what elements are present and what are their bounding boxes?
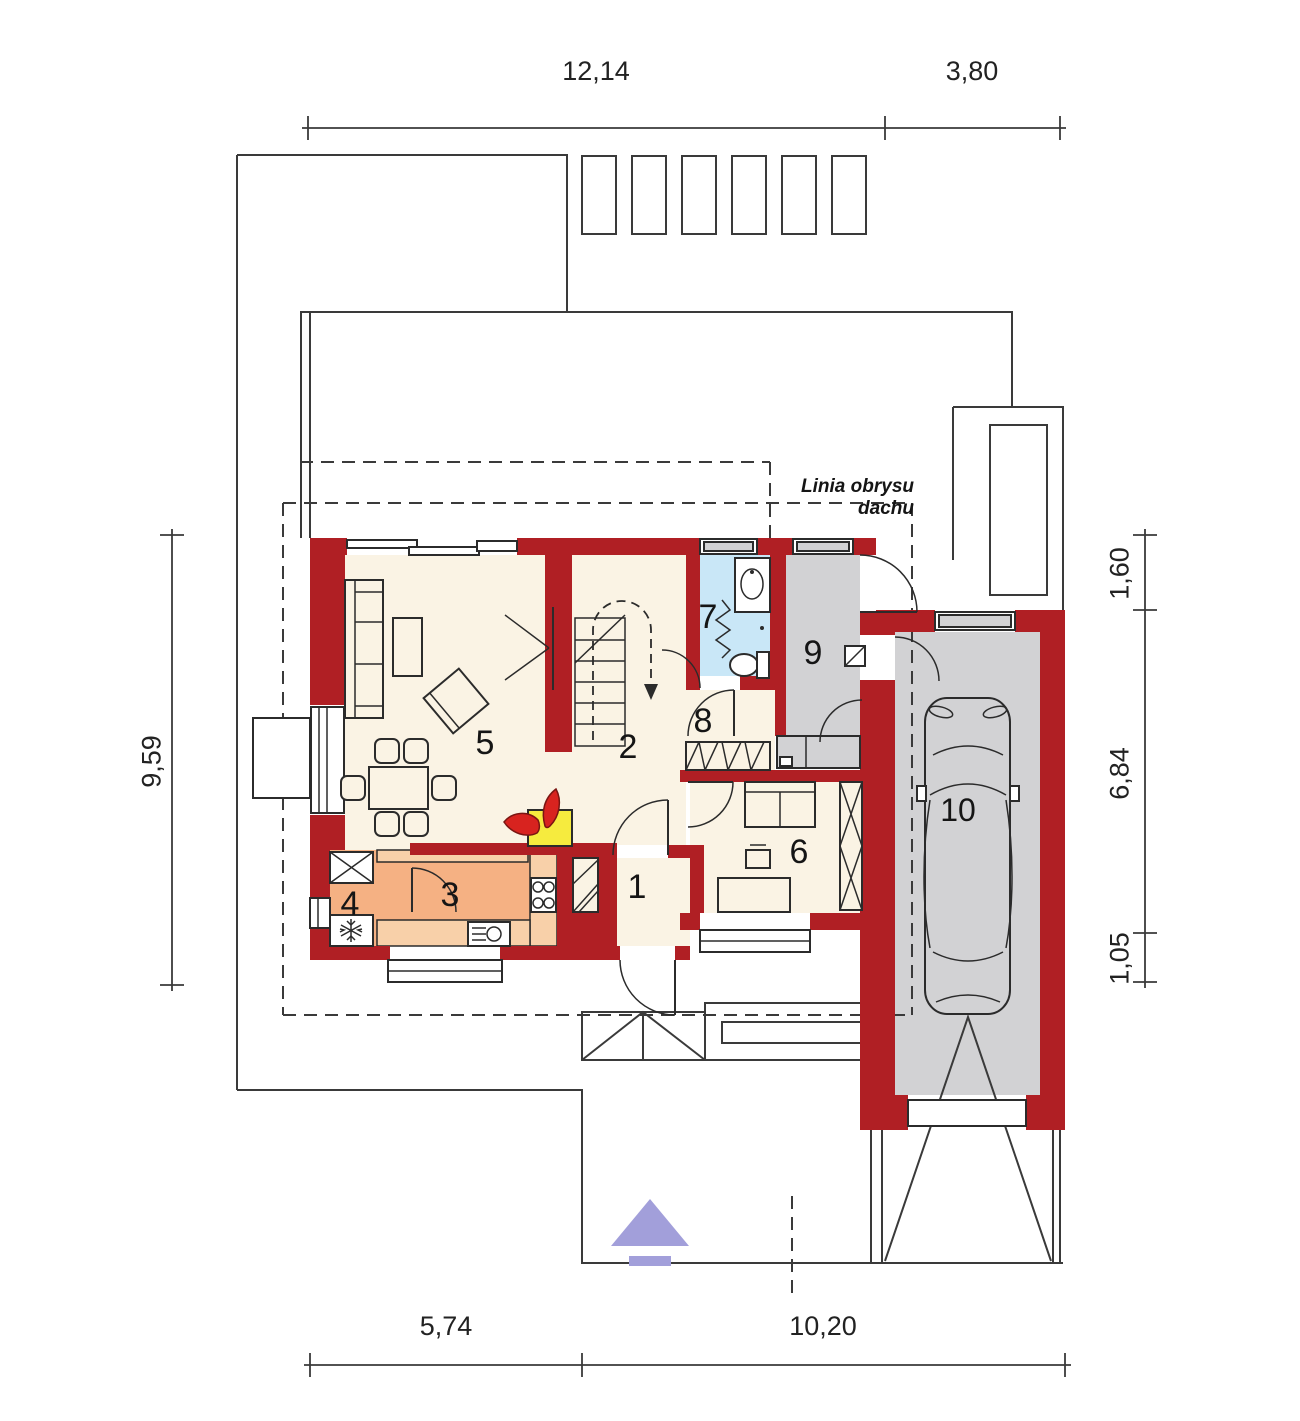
- desk: [718, 878, 790, 912]
- stove: [531, 878, 556, 912]
- sliding-door-panel: [347, 540, 417, 548]
- canopy-post: [990, 425, 1047, 595]
- room-label-3: 3: [428, 876, 472, 915]
- toilet: [730, 652, 769, 678]
- dim-top-right: 3,80: [912, 56, 1032, 87]
- front-door: [620, 960, 675, 1015]
- car-mirror: [917, 786, 926, 801]
- vestibule-cabinet: [777, 736, 860, 768]
- desk-monitor: [746, 850, 770, 868]
- roof-outline-label: Linia obrysu dachu: [754, 476, 914, 520]
- sliding-door-panel: [409, 547, 479, 555]
- room-label-1: 1: [615, 868, 659, 907]
- window-sill-south: [705, 1003, 883, 1060]
- dining-table: [369, 767, 428, 809]
- closet-wardrobe: [686, 742, 770, 770]
- dim-right-middle: 6,84: [1105, 734, 1136, 814]
- car: [917, 698, 1019, 1014]
- room-label-6: 6: [777, 833, 821, 872]
- garage-door: [908, 1100, 1026, 1126]
- sofa: [345, 580, 383, 718]
- ventilation-shaft: [845, 646, 865, 666]
- pergola-rafters: [582, 156, 866, 234]
- entrance-steps: [582, 1012, 705, 1060]
- sink: [468, 922, 510, 946]
- exterior-chimney: [253, 718, 310, 798]
- kitchen-window-sill: [388, 960, 502, 982]
- room-label-7: 7: [686, 598, 730, 637]
- entrance-door: [860, 555, 917, 612]
- dim-bottom-right: 10,20: [758, 1311, 888, 1342]
- terrace-edge-left: [301, 312, 310, 538]
- dim-right-bottom: 1,05: [1105, 919, 1136, 999]
- office-sofa: [745, 782, 815, 827]
- bathroom-window: [700, 539, 757, 554]
- entrance-arrow-icon: [611, 1199, 689, 1266]
- dim-top-left: 12,14: [531, 56, 661, 87]
- hall-wardrobe: [573, 858, 598, 912]
- room-label-10: 10: [936, 792, 980, 829]
- living-window-left: [311, 707, 344, 813]
- office-window-sill: [700, 930, 810, 952]
- dim-right-top: 1,60: [1105, 534, 1136, 614]
- floor-plan: 12,14 3,80 5,74 10,20 9,59 1,60 6,84 1,0…: [0, 0, 1300, 1421]
- office-wardrobe: [840, 782, 862, 910]
- room-label-4: 4: [328, 885, 372, 924]
- washbasin: [735, 558, 770, 612]
- vestibule-window: [793, 539, 853, 554]
- dim-bottom-left: 5,74: [381, 1311, 511, 1342]
- room-label-5: 5: [463, 724, 507, 763]
- room-label-8: 8: [681, 702, 725, 741]
- car-mirror: [1010, 786, 1019, 801]
- room-label-2: 2: [606, 728, 650, 767]
- room-label-9: 9: [791, 634, 835, 673]
- coffee-table: [393, 618, 422, 676]
- garage-window: [935, 612, 1015, 630]
- pantry-cabinet: [330, 852, 373, 883]
- floor-plan-drawing: [0, 0, 1300, 1421]
- dim-left: 9,59: [137, 722, 168, 802]
- pantry-window: [310, 898, 330, 928]
